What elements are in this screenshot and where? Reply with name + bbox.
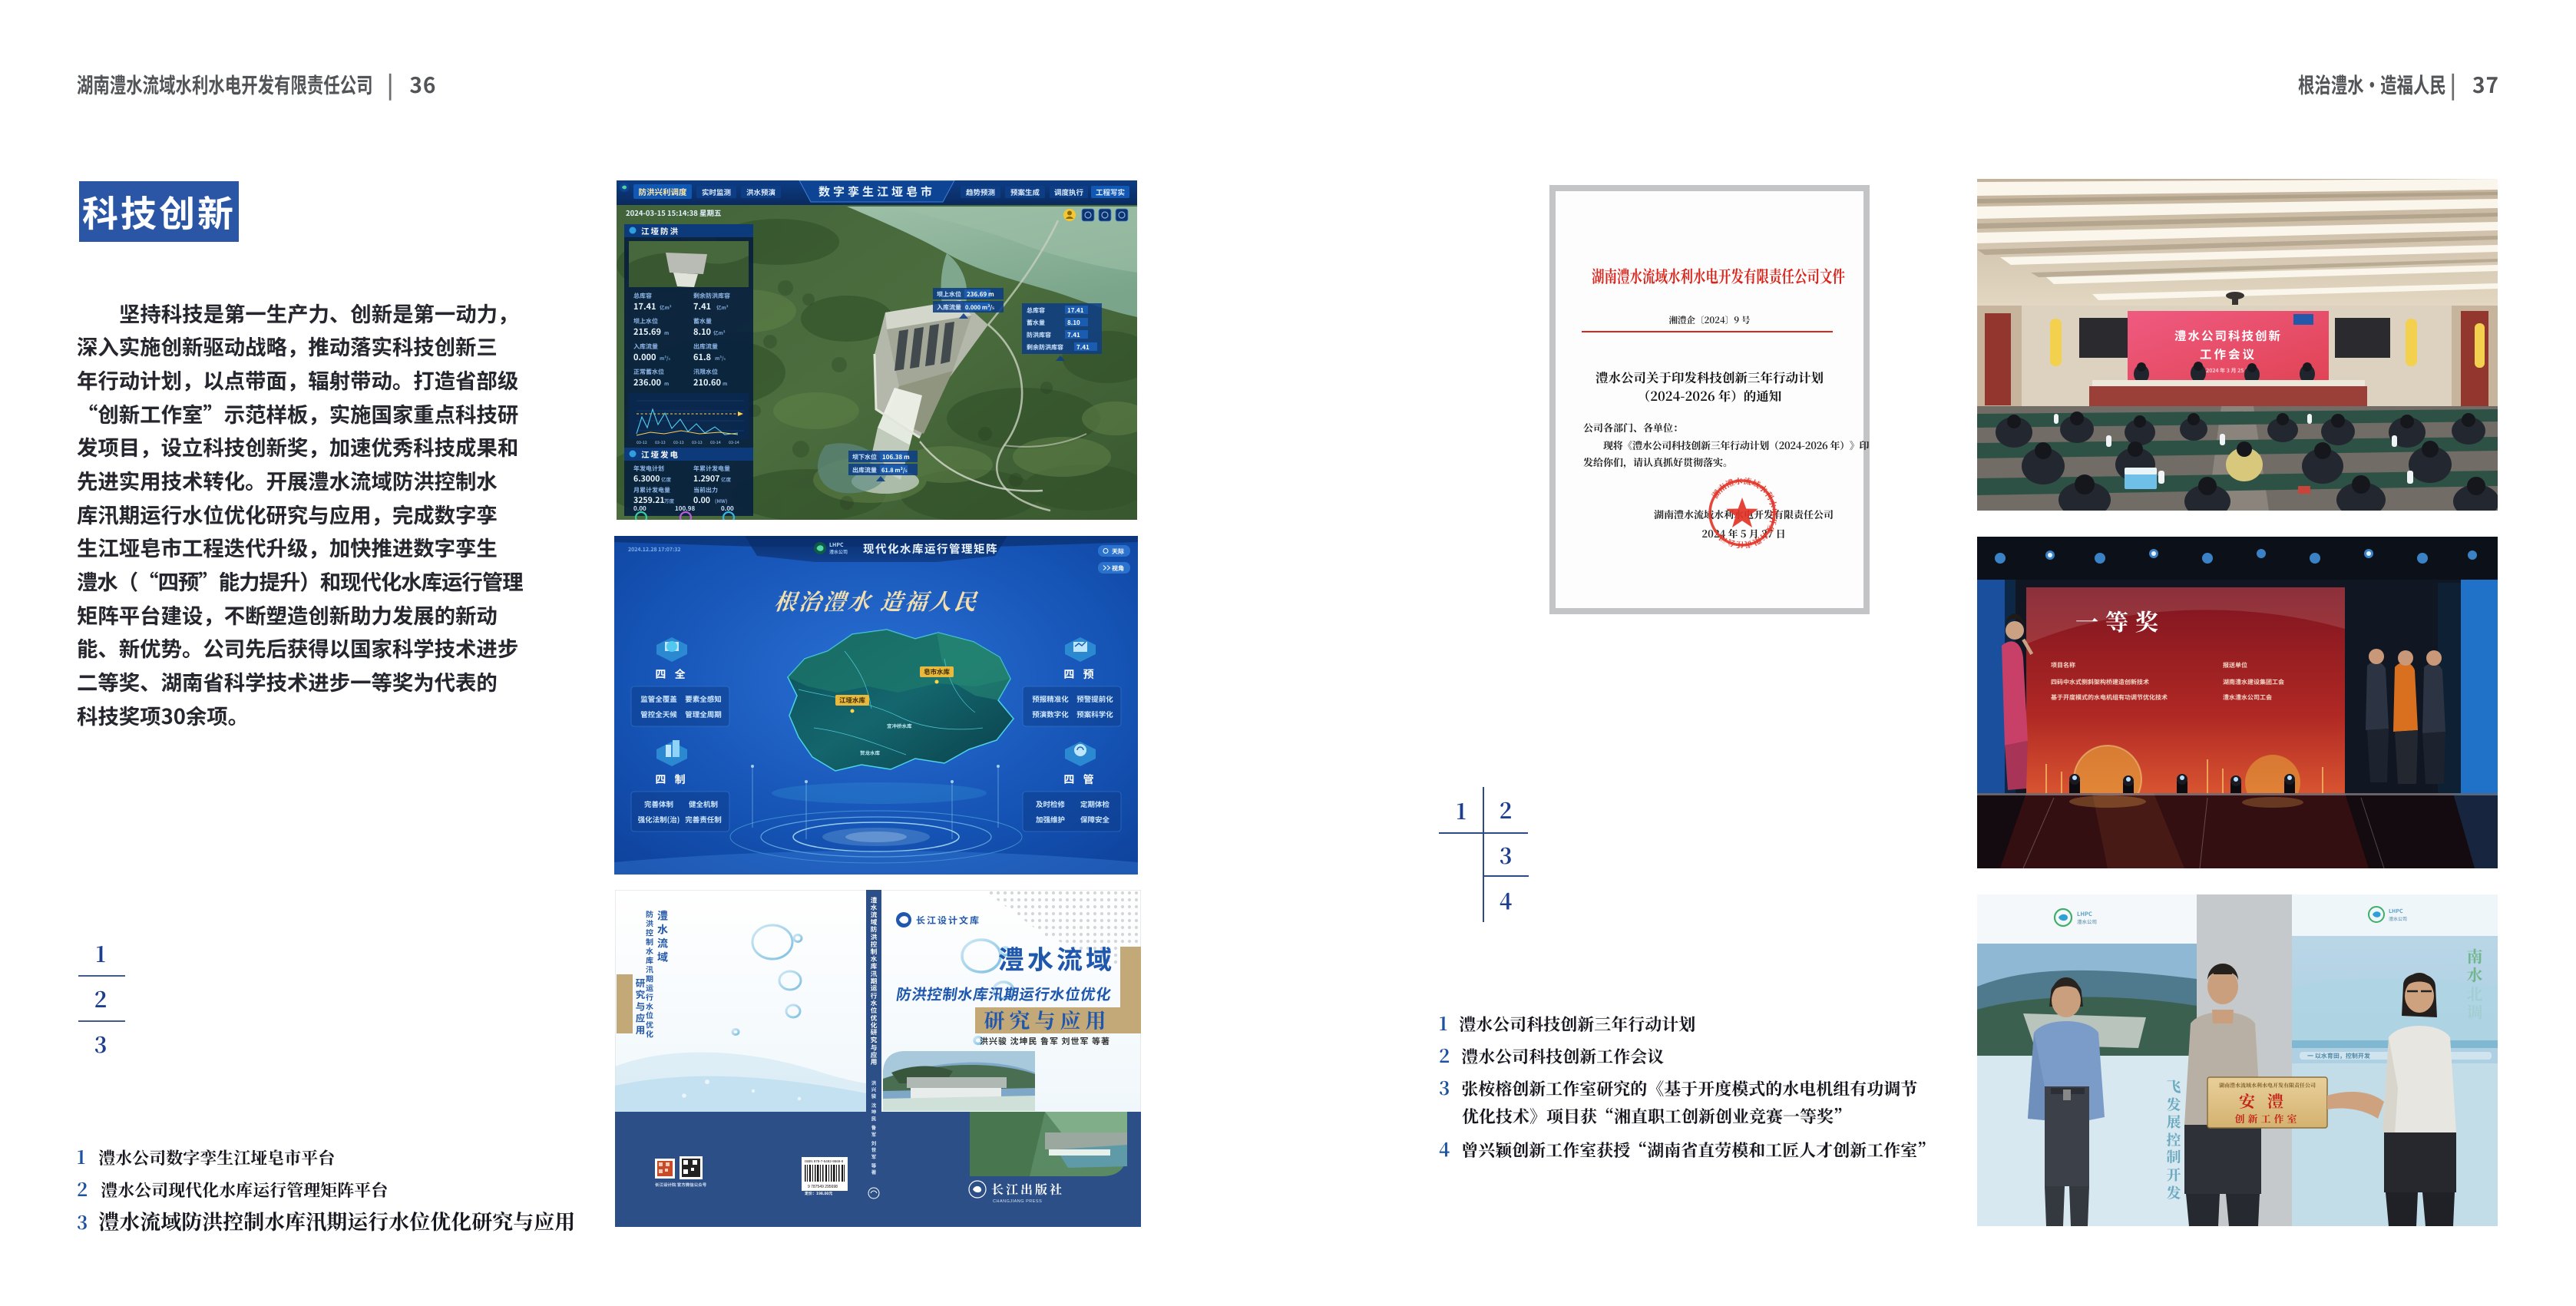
svg-text:剩余防洪库容: 剩余防洪库容 — [693, 292, 730, 300]
svg-text:7.41: 7.41 — [1067, 331, 1080, 339]
svg-text:项目名称: 项目名称 — [2051, 661, 2075, 670]
svg-text:(MW): (MW) — [715, 497, 727, 504]
svg-text:预报精准化: 预报精准化 — [1032, 693, 1069, 704]
svg-text:坝上水位: 坝上水位 — [633, 317, 658, 326]
svg-text:调度执行: 调度执行 — [1054, 187, 1084, 197]
svg-text:年发电计划: 年发电计划 — [633, 465, 664, 473]
svg-text:61.8: 61.8 — [693, 351, 711, 363]
svg-text:江垭水库: 江垭水库 — [839, 696, 866, 705]
svg-text:万度: 万度 — [664, 497, 675, 504]
svg-text:03-13: 03-13 — [673, 440, 684, 445]
svg-text:当前出力: 当前出力 — [693, 486, 718, 494]
svg-text:四 全: 四 全 — [655, 666, 688, 682]
svg-text:防洪库容: 防洪库容 — [1027, 331, 1051, 339]
svg-text:215.69: 215.69 — [633, 326, 661, 338]
svg-text:LHPC: LHPC — [2389, 908, 2403, 915]
svg-text:106.38 m: 106.38 m — [882, 453, 910, 461]
svg-text:0.000: 0.000 — [633, 351, 656, 363]
svg-text:预案生成: 预案生成 — [1010, 187, 1040, 197]
svg-text:总库容: 总库容 — [633, 292, 652, 300]
svg-text:17.41: 17.41 — [633, 300, 656, 312]
svg-text:m³/s: m³/s — [660, 354, 671, 362]
svg-text:宜冲桥水库: 宜冲桥水库 — [887, 722, 912, 729]
svg-text:澧水澧水公司工会: 澧水澧水公司工会 — [2223, 693, 2272, 702]
svg-text:澧水流域: 澧水流域 — [655, 910, 670, 965]
svg-text:03-14: 03-14 — [710, 440, 721, 445]
svg-text:03-14: 03-14 — [729, 440, 739, 445]
svg-text:澧水流域: 澧水流域 — [998, 939, 1115, 977]
svg-text:出库流量: 出库流量 — [852, 466, 877, 474]
svg-text:健全机制: 健全机制 — [689, 798, 718, 809]
svg-text:236.00: 236.00 — [633, 376, 661, 388]
svg-text:0.00: 0.00 — [693, 494, 710, 506]
svg-text:1.2907: 1.2907 — [693, 473, 719, 484]
svg-text:总库容: 总库容 — [1027, 306, 1045, 315]
svg-text:m³/s: m³/s — [715, 354, 726, 362]
svg-text:贺龙水库: 贺龙水库 — [860, 749, 881, 756]
svg-text:210.60: 210.60 — [693, 376, 721, 388]
svg-text:保障安全: 保障安全 — [1080, 814, 1110, 825]
svg-text:四 管: 四 管 — [1063, 772, 1096, 787]
svg-text:澧水公司: 澧水公司 — [829, 548, 848, 555]
svg-text:研究与应用: 研究与应用 — [633, 977, 648, 1037]
svg-text:出库流量: 出库流量 — [693, 342, 718, 351]
svg-text:创新工作室: 创新工作室 — [2234, 1111, 2300, 1126]
svg-text:要素全感知: 要素全感知 — [685, 693, 722, 704]
svg-text:CHANGJIANG PRESS: CHANGJIANG PRESS — [993, 1199, 1042, 1204]
svg-text:0.000 m³/s: 0.000 m³/s — [965, 303, 994, 312]
svg-text:四 预: 四 预 — [1063, 666, 1096, 682]
svg-text:9 787549 295698: 9 787549 295698 — [808, 1185, 838, 1189]
svg-text:管理全周期: 管理全周期 — [685, 709, 722, 719]
svg-text:61.8 m³/s: 61.8 m³/s — [881, 466, 908, 474]
svg-text:趋势预测: 趋势预测 — [966, 187, 995, 197]
svg-text:8.10: 8.10 — [1067, 319, 1080, 327]
svg-text:数字孪生江垭皂市: 数字孪生江垭皂市 — [818, 184, 935, 200]
svg-text:预警提前化: 预警提前化 — [1076, 693, 1113, 704]
svg-text:及时检修: 及时检修 — [1036, 798, 1066, 809]
svg-text:监管全覆盖: 监管全覆盖 — [640, 693, 677, 704]
svg-text:实时监测: 实时监测 — [702, 187, 731, 197]
svg-text:工程写实: 工程写实 — [1096, 187, 1125, 197]
svg-text:蓄水量: 蓄水量 — [1027, 319, 1045, 327]
svg-text:亿m³: 亿m³ — [713, 329, 726, 336]
svg-text:皂市水库: 皂市水库 — [924, 667, 951, 676]
svg-text:一等奖: 一等奖 — [2075, 603, 2165, 637]
svg-text:一 以水育田，控制开发: 一 以水育田，控制开发 — [2307, 1052, 2370, 1060]
svg-text:现代化水库运行管理矩阵: 现代化水库运行管理矩阵 — [863, 541, 998, 557]
svg-text:236.69 m: 236.69 m — [967, 290, 994, 299]
svg-text:m: m — [664, 379, 669, 387]
svg-text:湖南澧水流域水利水电开发有限责任公司: 湖南澧水流域水利水电开发有限责任公司 — [2219, 1082, 2316, 1089]
svg-text:澧水公司: 澧水公司 — [2077, 918, 2097, 925]
svg-text:完善责任制: 完善责任制 — [685, 814, 722, 825]
svg-text:加强维护: 加强维护 — [1036, 814, 1065, 825]
svg-text:年累计发电量: 年累计发电量 — [693, 465, 730, 473]
svg-text:澧水流域防洪控制水库汛期运行水位优化研究与应用: 澧水流域防洪控制水库汛期运行水位优化研究与应用 — [869, 896, 878, 1066]
svg-text:长江出版社: 长江出版社 — [991, 1180, 1064, 1198]
svg-text:17.41: 17.41 — [1067, 306, 1084, 315]
svg-text:根治澧水 造福人民: 根治澧水 造福人民 — [772, 585, 980, 617]
svg-text:正常蓄水位: 正常蓄水位 — [633, 368, 664, 376]
svg-text:管控全天候: 管控全天候 — [640, 709, 677, 719]
svg-text:03-12: 03-12 — [637, 440, 647, 445]
svg-text:03-13: 03-13 — [655, 440, 666, 445]
svg-text:洪兴骏 沈坤民 鲁军 刘世军 等著: 洪兴骏 沈坤民 鲁军 刘世军 等著 — [980, 1035, 1110, 1047]
svg-text:强化法制(治): 强化法制(治) — [638, 814, 680, 825]
svg-text:入库流量: 入库流量 — [937, 303, 961, 312]
svg-text:基于开度模式的水电机组有功调节优化技术: 基于开度模式的水电机组有功调节优化技术 — [2051, 693, 2168, 702]
svg-text:澧水公司科技创新: 澧水公司科技创新 — [2174, 327, 2282, 344]
svg-text:2024-03-15 15:14:38 星期五: 2024-03-15 15:14:38 星期五 — [626, 207, 722, 218]
svg-text:8.10: 8.10 — [693, 326, 711, 338]
svg-text:工作会议: 工作会议 — [2200, 346, 2257, 362]
svg-text:江垭防洪: 江垭防洪 — [641, 226, 680, 237]
svg-text:剩余防洪库容: 剩余防洪库容 — [1027, 343, 1063, 352]
svg-text:7.41: 7.41 — [693, 300, 711, 312]
svg-text:预演数字化: 预演数字化 — [1032, 709, 1069, 719]
svg-text:7.41: 7.41 — [1076, 343, 1090, 352]
svg-text:安澧: 安澧 — [2239, 1089, 2296, 1113]
svg-text:定期体检: 定期体检 — [1080, 798, 1110, 809]
svg-text:湖南澧水建设集团工会: 湖南澧水建设集团工会 — [2223, 678, 2284, 686]
svg-text:亿m³: 亿m³ — [716, 303, 729, 311]
svg-text:天际: 天际 — [1112, 547, 1124, 556]
svg-text:汛限水位: 汛限水位 — [693, 368, 718, 376]
svg-text:洪兴骏 沈坤民 鲁军 刘世军 等著: 洪兴骏 沈坤民 鲁军 刘世军 等著 — [870, 1080, 878, 1175]
svg-text:四 制: 四 制 — [655, 772, 688, 787]
svg-text:2024.12.28 17:07:32: 2024.12.28 17:07:32 — [628, 546, 681, 554]
svg-text:长江设计院 官方微信公众号: 长江设计院 官方微信公众号 — [655, 1182, 707, 1188]
svg-text:预案科学化: 预案科学化 — [1076, 709, 1113, 719]
svg-text:四码中水式侧斜架构桥建造创新技术: 四码中水式侧斜架构桥建造创新技术 — [2051, 678, 2149, 686]
svg-text:防洪控制水库汛期运行水位优化: 防洪控制水库汛期运行水位优化 — [894, 982, 1113, 1004]
svg-text:视角: 视角 — [1112, 564, 1124, 573]
svg-text:m: m — [723, 379, 727, 387]
svg-text:入库流量: 入库流量 — [633, 342, 658, 351]
svg-text:6.3000: 6.3000 — [633, 473, 660, 484]
svg-text:完善体制: 完善体制 — [644, 798, 673, 809]
svg-text:防洪兴利调度: 防洪兴利调度 — [639, 187, 687, 198]
svg-text:亿度: 亿度 — [661, 475, 672, 483]
svg-text:研究与应用: 研究与应用 — [984, 1004, 1111, 1034]
svg-text:03-13: 03-13 — [692, 440, 703, 445]
svg-text:长江设计文库: 长江设计文库 — [916, 914, 980, 927]
svg-text:洪水预演: 洪水预演 — [746, 187, 776, 197]
svg-text:ISBN 978-7-5492-9569-8: ISBN 978-7-5492-9569-8 — [805, 1159, 844, 1163]
svg-text:m: m — [664, 329, 669, 336]
svg-text:报送单位: 报送单位 — [2223, 661, 2247, 670]
svg-text:定价：198.00元: 定价：198.00元 — [805, 1191, 832, 1196]
svg-text:2024 年 3 月 25 日: 2024 年 3 月 25 日 — [2206, 367, 2250, 375]
svg-text:亿度: 亿度 — [721, 475, 732, 483]
svg-text:坝下水位: 坝下水位 — [852, 453, 877, 461]
svg-text:蓄水量: 蓄水量 — [693, 317, 712, 326]
svg-text:澧水公司: 澧水公司 — [2389, 915, 2407, 922]
svg-text:飞发展控制开发: 飞发展控制开发 — [2164, 1079, 2184, 1202]
svg-text:月累计发电量: 月累计发电量 — [633, 486, 670, 494]
svg-text:坝上水位: 坝上水位 — [937, 290, 961, 299]
svg-text:江垭发电: 江垭发电 — [641, 449, 680, 461]
svg-text:亿m³: 亿m³ — [660, 303, 672, 311]
